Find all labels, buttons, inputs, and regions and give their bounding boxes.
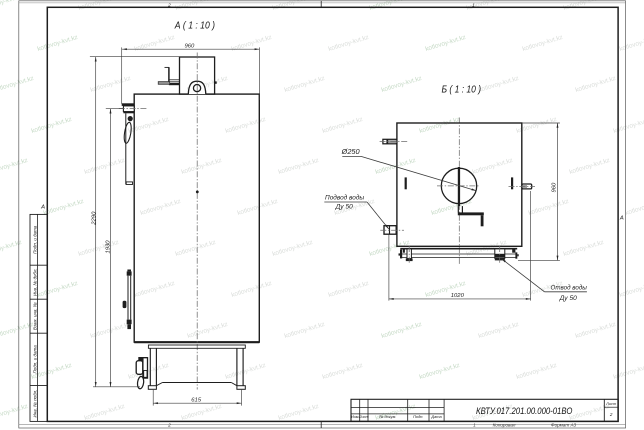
svg-text:Ду 50: Ду 50 — [559, 295, 578, 302]
svg-text:615: 615 — [191, 398, 202, 404]
svg-text:960: 960 — [184, 43, 195, 49]
svg-text:КВТУ.017.201.00.000-01ВО: КВТУ.017.201.00.000-01ВО — [476, 406, 572, 416]
svg-text:Ø250: Ø250 — [341, 147, 361, 156]
svg-text:Подп. и дата: Подп. и дата — [32, 225, 37, 254]
svg-text:Лист: Лист — [358, 414, 370, 419]
svg-text:Взам. инв. №: Взам. инв. № — [32, 302, 37, 330]
svg-text:А ( 1 : 10 ): А ( 1 : 10 ) — [174, 20, 215, 31]
svg-text:А: А — [40, 205, 45, 211]
svg-text:Формат А3: Формат А3 — [551, 423, 577, 428]
svg-text:Б ( 1 : 10 ): Б ( 1 : 10 ) — [441, 85, 481, 96]
svg-text:Инв. № подл.: Инв. № подл. — [32, 390, 37, 418]
svg-text:Ду 50: Ду 50 — [335, 203, 354, 210]
svg-text:Инв. № дубл.: Инв. № дубл. — [32, 268, 37, 296]
svg-text:2290: 2290 — [91, 211, 97, 226]
svg-text:1930: 1930 — [106, 240, 112, 254]
svg-text:№ докум.: № докум. — [379, 414, 396, 419]
svg-text:2: 2 — [167, 3, 171, 9]
svg-text:А: А — [619, 216, 624, 222]
svg-text:Подп. и дата: Подп. и дата — [32, 345, 37, 374]
svg-text:Подп.: Подп. — [413, 414, 423, 419]
svg-text:Лист: Лист — [605, 401, 617, 406]
svg-text:Отвод воды: Отвод воды — [551, 283, 587, 291]
svg-text:2: 2 — [609, 412, 613, 417]
svg-text:960: 960 — [552, 182, 558, 193]
svg-text:Подвод воды: Подвод воды — [325, 193, 364, 201]
svg-text:1020: 1020 — [451, 293, 465, 299]
svg-text:2: 2 — [167, 422, 171, 428]
svg-text:Копировал: Копировал — [493, 423, 516, 428]
svg-text:Дата: Дата — [430, 414, 442, 419]
